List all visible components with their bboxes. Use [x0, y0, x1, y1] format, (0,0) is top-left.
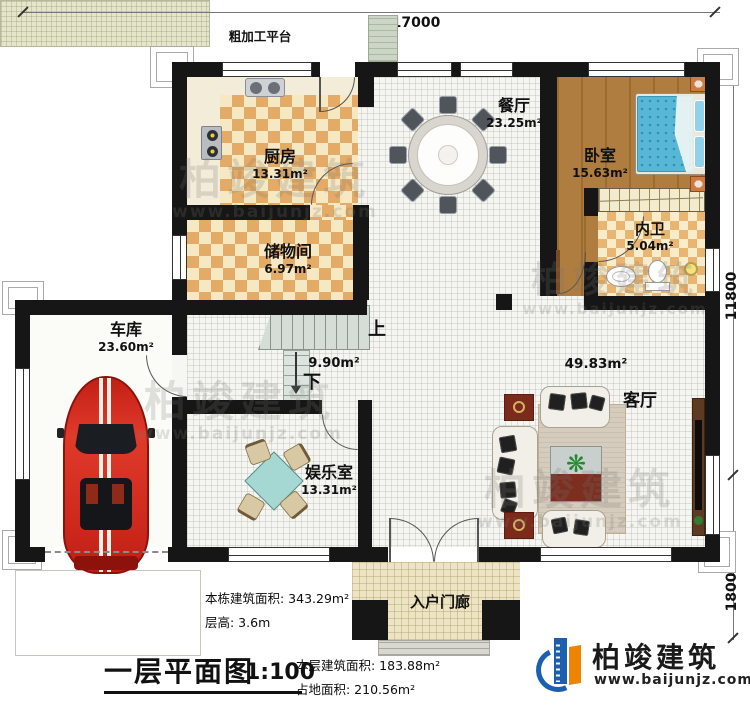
- room-label-porch: 入户门廊: [385, 591, 495, 612]
- sofa-cushion: [548, 393, 566, 411]
- logo-url: www.baijunjz.com: [594, 672, 750, 688]
- stat-floor-area: 本层建筑面积: 183.88m²: [296, 655, 440, 674]
- stat-footprint: 占地面积: 210.56m²: [296, 679, 415, 698]
- logo-tower: [554, 638, 567, 684]
- window: [228, 547, 330, 562]
- sofa-cushion: [499, 435, 518, 454]
- stairs-down-label: 下: [303, 368, 321, 394]
- sink-basin: [250, 82, 262, 94]
- side-table-ring: [513, 401, 525, 413]
- wall: [15, 547, 45, 562]
- car-mirror: [148, 428, 155, 438]
- rough-work-platform: [0, 0, 210, 47]
- stove-burner: [207, 146, 218, 157]
- floor-plan-canvas: 17000 11800 1800: [0, 0, 750, 706]
- dining-chair: [389, 146, 407, 164]
- sofa-cushion: [570, 392, 588, 410]
- wall: [584, 188, 598, 216]
- wall: [358, 77, 374, 107]
- kitchen-door-tile: [310, 205, 353, 220]
- car-rear: [74, 556, 138, 570]
- wall: [172, 397, 187, 547]
- bathroom-sink: [606, 266, 636, 287]
- side-table-ring: [513, 519, 525, 531]
- title-underline: [104, 691, 302, 694]
- window: [172, 235, 187, 280]
- window: [588, 62, 685, 77]
- room-label-storage: 储物间 6.97m²: [236, 242, 340, 277]
- car: [63, 376, 149, 574]
- porch-steps: [378, 640, 490, 656]
- car-engine-detail: [112, 484, 124, 504]
- room-label-garage: 车库 23.60m²: [74, 320, 178, 355]
- wall: [478, 547, 540, 562]
- window: [15, 368, 30, 480]
- room-label-dining: 餐厅 23.25m²: [462, 96, 566, 131]
- porch-pillar: [352, 600, 388, 640]
- stove: [201, 126, 222, 160]
- door-leaf: [319, 77, 321, 112]
- kitchen-sink: [245, 78, 285, 97]
- company-logo: 柏竣建筑 www.baijunjz.com: [538, 634, 738, 700]
- cabinet-plant: [694, 516, 703, 525]
- stove-burner: [207, 130, 218, 141]
- wall: [705, 62, 720, 248]
- door-leaf: [556, 250, 560, 294]
- garage-door-dashed-line: [45, 551, 168, 553]
- room-label-kitchen: 厨房 13.31m²: [228, 147, 332, 182]
- car-engine-detail: [86, 484, 98, 504]
- car-stripe: [99, 378, 103, 572]
- dining-chair: [439, 96, 457, 114]
- dimension-right-lower-value: 1800: [724, 566, 740, 618]
- platform-steps: [368, 15, 398, 62]
- window: [460, 62, 513, 77]
- wall: [355, 62, 397, 77]
- room-label-bedroom: 卧室 15.63m²: [548, 146, 652, 181]
- stat-building-area: 本栋建筑面积: 343.29m²: [205, 588, 349, 607]
- wall: [15, 315, 30, 368]
- dining-chair: [489, 146, 507, 164]
- bath-door-floor: [584, 216, 598, 262]
- wall: [187, 205, 310, 220]
- wall: [330, 547, 388, 562]
- wall: [584, 262, 598, 298]
- wall: [452, 62, 460, 77]
- wall: [584, 296, 705, 310]
- sink-basin: [268, 82, 280, 94]
- wall: [312, 62, 320, 77]
- plant-icon: ❋: [562, 450, 590, 478]
- car-stripe: [107, 378, 111, 572]
- sofa-cushion: [573, 519, 590, 536]
- dimension-line-top: [22, 12, 720, 13]
- room-label-entertainment: 娱乐室 13.31m²: [277, 463, 381, 498]
- logo-tower-orange: [569, 645, 581, 685]
- bed-pillow: [694, 100, 705, 132]
- wall: [15, 300, 367, 315]
- wall: [187, 400, 322, 414]
- bed-pillow: [694, 136, 705, 168]
- window: [397, 62, 452, 77]
- wall: [15, 480, 30, 547]
- stairs-up-label: 上: [368, 315, 386, 341]
- window: [222, 62, 312, 77]
- wall: [172, 62, 187, 235]
- tv: [695, 420, 702, 510]
- logo-name: 柏竣建筑: [592, 636, 720, 676]
- door-leaf: [477, 518, 479, 562]
- platform-label: 粗加工平台: [200, 26, 320, 45]
- sofa-cushion: [551, 517, 569, 535]
- room-label-bath: 内卫 5.04m²: [598, 220, 702, 254]
- wall: [705, 535, 720, 562]
- structural-column: [496, 294, 512, 310]
- car-mirror: [57, 428, 64, 438]
- sofa-cushion: [499, 481, 516, 498]
- room-label-living: 客厅: [600, 386, 680, 411]
- wall: [705, 292, 720, 455]
- window: [705, 455, 720, 535]
- logo-building-icon: [538, 634, 588, 698]
- sofa-cushion: [497, 457, 516, 476]
- sink-bowl: [612, 271, 630, 282]
- wall: [172, 547, 228, 562]
- window: [540, 547, 672, 562]
- dining-chair: [439, 196, 457, 214]
- car-windshield: [74, 424, 138, 454]
- floor-drain: [684, 262, 698, 276]
- dimension-right-upper-value: 11800: [724, 266, 740, 326]
- stair-arrow-shaft: [295, 352, 297, 386]
- wall: [187, 62, 222, 77]
- stat-floor-height: 层高: 3.6m: [205, 612, 270, 631]
- door-leaf: [389, 518, 391, 562]
- dining-table-center: [438, 145, 458, 165]
- driveway-outline: [15, 570, 201, 656]
- window: [705, 248, 720, 292]
- plan-title: 一层平面图: [104, 650, 254, 690]
- wall: [353, 205, 369, 300]
- toilet-tank: [645, 282, 670, 291]
- toilet-bowl: [648, 260, 667, 283]
- room-label-living-area: 49.83m²: [556, 356, 636, 372]
- stair-arrow-head: [291, 386, 301, 394]
